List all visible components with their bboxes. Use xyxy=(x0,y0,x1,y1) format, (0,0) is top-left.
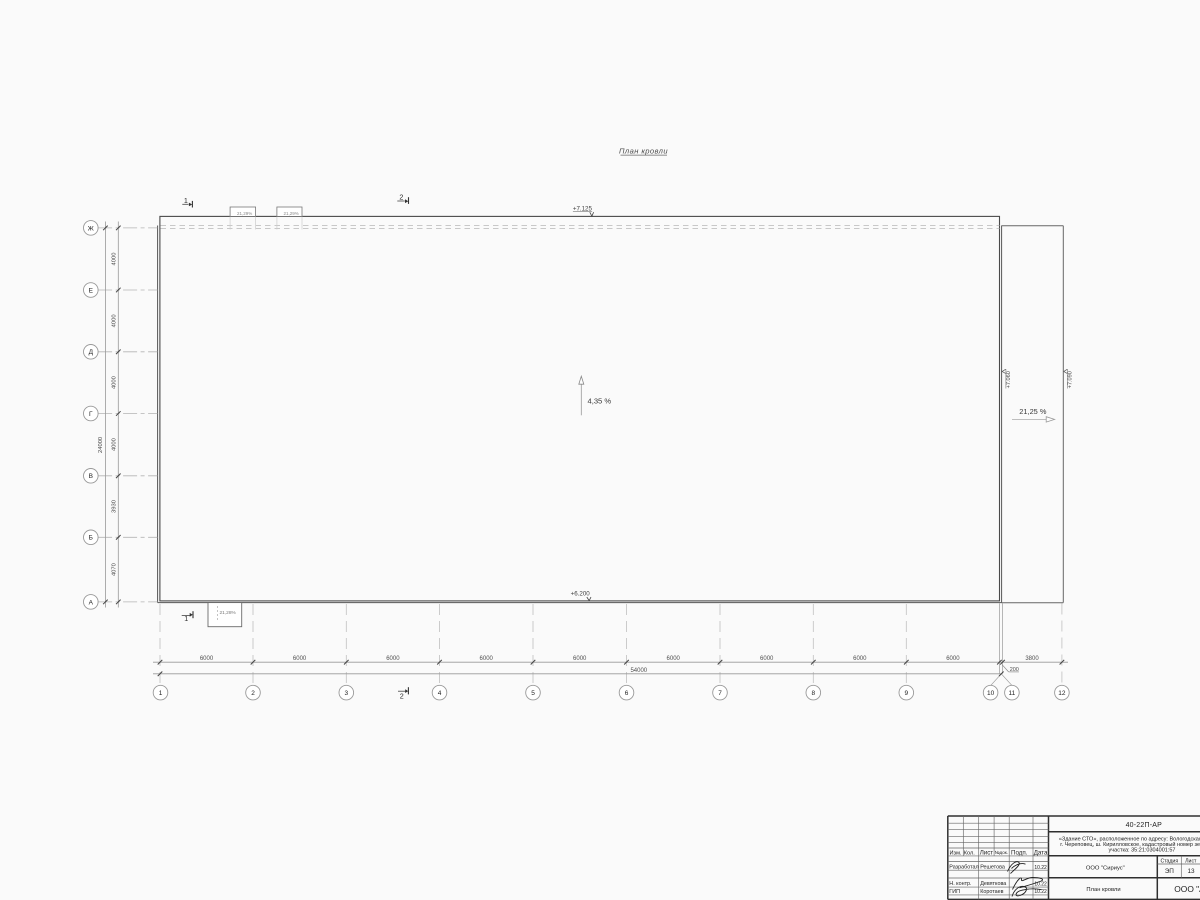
svg-text:ГИП: ГИП xyxy=(949,889,960,895)
svg-text:10.22: 10.22 xyxy=(1034,889,1047,895)
svg-text:Девяткова: Девяткова xyxy=(980,881,1006,887)
svg-text:Е: Е xyxy=(89,287,94,294)
svg-text:4,35 %: 4,35 % xyxy=(588,397,612,406)
svg-text:12: 12 xyxy=(1058,690,1066,697)
svg-text:6: 6 xyxy=(625,690,629,697)
svg-text:4000: 4000 xyxy=(111,314,117,327)
svg-text:Подп.: Подп. xyxy=(1011,849,1028,856)
svg-text:3800: 3800 xyxy=(1025,656,1039,662)
svg-text:5: 5 xyxy=(531,690,535,697)
svg-text:6000: 6000 xyxy=(667,656,681,662)
svg-text:Н. контр.: Н. контр. xyxy=(949,881,971,887)
svg-text:9: 9 xyxy=(904,690,908,697)
svg-text:40-22П-АР: 40-22П-АР xyxy=(1126,822,1163,829)
svg-text:Решетова: Решетова xyxy=(980,865,1005,871)
svg-text:Ж: Ж xyxy=(88,225,94,232)
svg-text:4000: 4000 xyxy=(111,438,117,451)
svg-text:Изм.: Изм. xyxy=(950,850,962,856)
svg-text:4: 4 xyxy=(438,690,442,697)
svg-text:ООО "Сириус": ООО "Сириус" xyxy=(1086,866,1125,872)
svg-text:ООО "Ар: ООО "Ар xyxy=(1174,884,1200,894)
svg-text:1: 1 xyxy=(159,690,163,697)
svg-text:№док.: №док. xyxy=(995,850,1008,855)
svg-text:2: 2 xyxy=(251,690,255,697)
svg-text:3930: 3930 xyxy=(111,500,117,513)
svg-text:1: 1 xyxy=(184,196,188,205)
svg-text:10.22: 10.22 xyxy=(1034,881,1047,887)
svg-text:+6.200: +6.200 xyxy=(571,590,591,597)
svg-text:24000: 24000 xyxy=(98,437,104,453)
svg-text:21,28%: 21,28% xyxy=(220,610,237,616)
svg-text:План кровли: План кровли xyxy=(619,146,668,155)
svg-text:Кол.: Кол. xyxy=(964,850,976,856)
svg-text:6000: 6000 xyxy=(853,656,867,662)
svg-text:А: А xyxy=(89,599,94,606)
svg-text:4070: 4070 xyxy=(111,563,117,576)
svg-text:21,29%: 21,29% xyxy=(237,211,252,216)
svg-text:Стадия: Стадия xyxy=(1160,859,1178,865)
svg-text:2: 2 xyxy=(400,691,404,700)
svg-text:21,25 %: 21,25 % xyxy=(1019,407,1047,416)
svg-text:7: 7 xyxy=(718,690,722,697)
svg-text:8: 8 xyxy=(811,690,815,697)
svg-text:6000: 6000 xyxy=(573,656,587,662)
svg-text:Коротаев: Коротаев xyxy=(980,889,1003,895)
svg-text:200: 200 xyxy=(1010,667,1019,673)
svg-text:6000: 6000 xyxy=(480,656,494,662)
svg-text:Д: Д xyxy=(89,349,94,356)
svg-text:10: 10 xyxy=(987,690,995,697)
svg-text:+7.090: +7.090 xyxy=(1068,371,1074,388)
svg-text:В: В xyxy=(89,473,93,480)
svg-text:6000: 6000 xyxy=(293,656,307,662)
svg-text:6000: 6000 xyxy=(760,656,774,662)
svg-text:Разработал: Разработал xyxy=(949,865,978,871)
svg-text:2: 2 xyxy=(399,192,403,201)
svg-text:4000: 4000 xyxy=(111,253,117,266)
svg-text:3: 3 xyxy=(344,690,348,697)
svg-text:План кровли: План кровли xyxy=(1086,887,1120,893)
svg-text:ЭП: ЭП xyxy=(1165,868,1175,875)
svg-text:4000: 4000 xyxy=(111,376,117,389)
svg-text:Б: Б xyxy=(89,535,93,542)
svg-text:6000: 6000 xyxy=(386,656,400,662)
svg-text:21,29%: 21,29% xyxy=(284,211,299,216)
svg-text:13: 13 xyxy=(1187,868,1195,875)
svg-text:+7.060: +7.060 xyxy=(1006,371,1012,388)
svg-text:Г: Г xyxy=(89,411,93,418)
svg-text:11: 11 xyxy=(1009,690,1016,697)
svg-text:10.22: 10.22 xyxy=(1034,865,1047,871)
svg-text:Лист: Лист xyxy=(980,849,994,856)
svg-text:Дата: Дата xyxy=(1034,849,1048,856)
svg-text:участка: 35:21:0304001:57: участка: 35:21:0304001:57 xyxy=(1109,847,1176,853)
svg-text:Лист: Лист xyxy=(1185,859,1197,865)
svg-text:6000: 6000 xyxy=(946,656,960,662)
svg-text:6000: 6000 xyxy=(200,656,214,662)
svg-text:54000: 54000 xyxy=(630,668,647,674)
